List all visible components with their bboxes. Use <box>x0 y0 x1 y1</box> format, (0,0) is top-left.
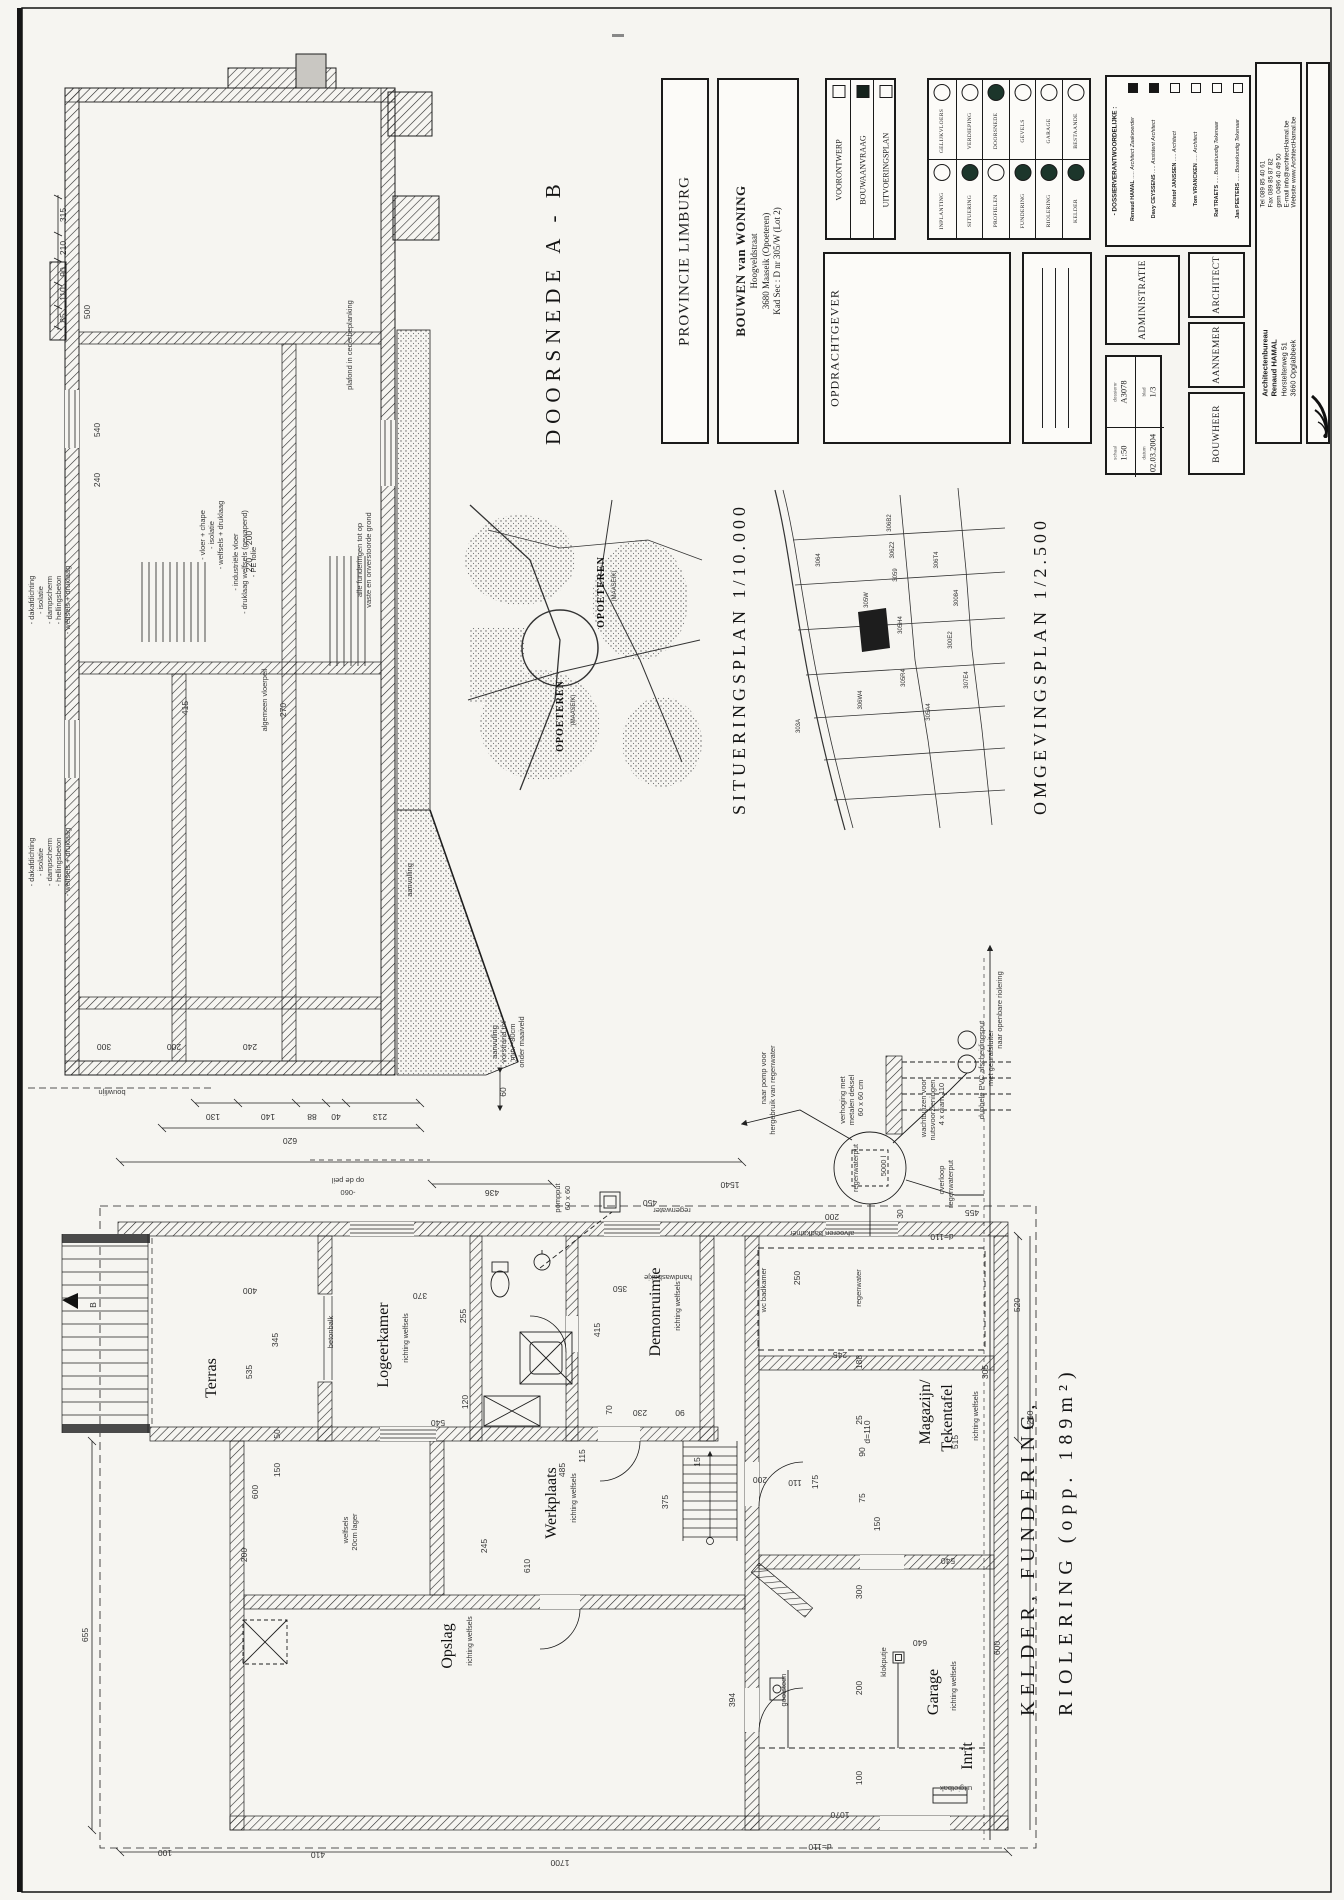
plan-label: 400 <box>243 1286 257 1296</box>
sheet-circle <box>1014 164 1031 181</box>
plan-label: 60 x 60 <box>563 1186 572 1211</box>
section-label: 60 <box>498 1087 508 1097</box>
section-label: algemeen vloerpeil <box>260 668 269 731</box>
meta-box: dossiernrA3078 blad1/3 schaal1:50 datum0… <box>1105 355 1162 475</box>
sheet-circle <box>1067 84 1084 101</box>
plan-label: 20cm lager <box>350 1513 359 1551</box>
sheet-label: KELDER <box>1073 199 1079 223</box>
phase-checkbox <box>879 85 892 98</box>
plan-title-line1: KELDER, FUNDERING, <box>1017 1399 1039 1716</box>
sheet-label: FUNDERING <box>1020 193 1026 228</box>
plan-label: 375 <box>660 1495 670 1509</box>
person-role: Bouwkundig Tekenaar <box>1235 119 1241 172</box>
plan-label: 455 <box>965 1208 979 1218</box>
section-label: vorstrand tot <box>499 1020 508 1063</box>
plan-label: afvoeren badkamer <box>789 1229 854 1238</box>
plan-label: 410 <box>311 1850 325 1860</box>
bouwheer-signature-box <box>1022 252 1092 444</box>
client-label: OPDRACHTGEVER <box>828 289 843 407</box>
plan-label: 485 <box>557 1463 567 1477</box>
bouwheer-box: BOUWHEER <box>1188 392 1245 475</box>
phase-voorontwerp: VOORONTWERP <box>827 80 850 238</box>
parcel-label: 303A <box>796 719 802 733</box>
person-role: Assistent Architect <box>1151 120 1157 164</box>
plan-label: hergebruik van regenwater <box>768 1045 777 1135</box>
plan-label: 515 <box>950 1435 960 1449</box>
person-checkbox <box>1128 83 1138 93</box>
sheet-circle <box>961 164 978 181</box>
plan-label: 188 <box>854 1355 864 1369</box>
firm-address1: Horstelterweg 51 <box>1279 329 1288 396</box>
section-label: - welfsels + druklaag <box>63 566 72 635</box>
plan-label: naar openbare riolering <box>995 971 1004 1049</box>
firm-fax: Fax 089 85 87 82 <box>1267 117 1275 208</box>
dossier-person: Renaud HAMAL ..... Architect Zaakvoerder <box>1123 81 1142 243</box>
plan-label: 50 <box>272 1429 282 1439</box>
phase-label: VOORONTWERP <box>834 139 843 200</box>
plan-label: 120 <box>460 1395 470 1409</box>
plan-label: 90 <box>857 1447 867 1457</box>
plan-label: 370 <box>413 1291 427 1301</box>
person-name: Tom VRANCKEN <box>1193 163 1199 206</box>
plan-label: verhoging met <box>838 1075 847 1123</box>
person-checkbox <box>1149 83 1159 93</box>
plan-label: 115 <box>577 1449 587 1463</box>
plan-label: wc badkamer <box>759 1267 768 1313</box>
room-label: Terras <box>203 1358 220 1398</box>
plan-label: nutsvoorzieningen <box>928 1080 937 1141</box>
map-label: OPOETEREN <box>596 556 607 628</box>
section-label: 240 <box>92 473 102 487</box>
parcel-label: 306T4 <box>934 551 940 569</box>
dossier-person: Kristof JANSSEN ..... Architect <box>1165 81 1184 243</box>
plan-label: uitgietbak <box>940 1784 972 1793</box>
plan-label: 350 <box>613 1284 627 1294</box>
administratie-label: ADMINISTRATIE <box>1138 260 1148 340</box>
plan-label: 300 <box>854 1585 864 1599</box>
sheet-label: INPLANTING <box>939 192 945 229</box>
sheet-circle <box>934 164 951 181</box>
section-label: aanvulling <box>490 1025 499 1059</box>
plan-label: richting welfsels <box>467 1616 474 1666</box>
parcel-label: 305W <box>864 592 870 608</box>
title-block: PROVINCIE LIMBURG BOUWEN van WONING Hoog… <box>655 60 1344 480</box>
section-label: 540 <box>92 423 102 437</box>
section-label: 213 <box>373 1112 387 1122</box>
section-label: 210 <box>58 241 68 255</box>
section-label: 240 <box>243 1042 257 1052</box>
plan-label: 245 <box>479 1539 489 1553</box>
person-role: Architect <box>1172 131 1178 152</box>
plan-label: 15 <box>692 1457 702 1467</box>
plan-label: 4 x diam 110 <box>937 1083 946 1125</box>
parcel-label: 306B2 <box>887 514 893 532</box>
plan-label: regenwater <box>854 1269 863 1307</box>
plan-label: 75 <box>857 1493 867 1503</box>
section-label: onder maaiveld <box>517 1016 526 1067</box>
phase-checkbox <box>832 85 845 98</box>
parcel-label: 3064 <box>816 553 822 567</box>
plan-label: welfsels <box>341 1516 350 1544</box>
plan-label: 70 <box>604 1405 614 1415</box>
sheet-circle <box>988 164 1005 181</box>
section-label: alle funderingen tot op <box>355 523 364 597</box>
plan-label: richting welfsels <box>675 1281 682 1331</box>
sheet-label: PROFIELEN <box>993 194 999 227</box>
sheet-label: BESTAANDE <box>1073 113 1079 149</box>
section-label: 110 <box>58 287 68 301</box>
sheet-label: GARAGE <box>1046 118 1052 143</box>
plan-label: 60 x 60 cm <box>856 1080 865 1117</box>
scanned-blueprint-sheet: OPOETEREN(MAASEIK)OPOETEREN(MAASEIK) 306… <box>0 0 1344 1900</box>
plan-label: dubbele PVC afscheidingsput <box>977 1020 986 1119</box>
section-label: 436 <box>485 1188 499 1198</box>
person-checkbox <box>1170 83 1180 93</box>
plan-label: d=110 <box>930 1232 954 1242</box>
dossier-person: Raf TRAETS ..... Bouwkundig Tekenaar <box>1207 81 1226 243</box>
plan-label: 100 <box>158 1848 172 1858</box>
dossier-number: A3078 <box>1119 380 1129 403</box>
room-label: Opslag <box>439 1623 456 1668</box>
parcel-label: 307E4 <box>964 671 970 689</box>
section-label: - dampscherm <box>45 838 54 886</box>
plan-label: richting welfsels <box>973 1391 980 1441</box>
person-name: Kristof JANSSEN <box>1172 163 1178 207</box>
firm-gsm: gsm 0496 40 49 50 <box>1275 117 1283 208</box>
section-label: op de peil <box>331 1176 364 1185</box>
person-name: Jan PEETERS <box>1235 183 1241 219</box>
section-label: 220 <box>244 558 254 572</box>
plan-label: richting welfsels <box>951 1661 958 1711</box>
section-label: bouwlijn <box>98 1088 125 1097</box>
plan-label: 655 <box>80 1628 90 1642</box>
sheet-number: 1/3 <box>1148 387 1158 398</box>
aannemer-box: AANNEMER <box>1188 322 1245 388</box>
plan-label: 150 <box>272 1463 282 1477</box>
person-name: Davy CEYSSENS <box>1151 174 1157 218</box>
parcel-label: 305R4 <box>901 669 907 687</box>
situeringsplan-title: SITUERINGSPLAN 1/10.000 <box>729 503 749 815</box>
section-label: 140 <box>261 1112 275 1122</box>
scale-value: 1:50 <box>1119 445 1129 460</box>
section-label: plafond in cederbeplanking <box>345 300 354 390</box>
plan-label: d=110 <box>862 1420 872 1444</box>
section-label: - isolatie <box>36 848 45 876</box>
aannemer-label: AANNEMER <box>1212 326 1222 384</box>
province-box: PROVINCIE LIMBURG <box>661 78 709 444</box>
province-label: PROVINCIE LIMBURG <box>677 176 694 346</box>
parcel-label: 300E2 <box>948 631 954 649</box>
sheet-circle <box>1067 164 1084 181</box>
person-role: Architect Zaakvoerder <box>1130 117 1136 170</box>
dossier-person: Tom VRANCKEN ..... Architect <box>1186 81 1205 243</box>
architect-box: ARCHITECT <box>1188 252 1245 318</box>
logo-box <box>1306 62 1330 444</box>
plan-label: 175 <box>810 1475 820 1489</box>
date-value: 02.03.2004 <box>1148 433 1158 471</box>
sheet-label: SITUERING <box>967 194 973 226</box>
phase-bouwaanvraag: BOUWAANVRAAG <box>850 80 874 238</box>
parcel-label: 306W4 <box>858 690 864 710</box>
plan-label: 1540 <box>720 1180 739 1190</box>
firm-address2: 3660 Opglabbeek <box>1288 329 1297 396</box>
map-label: (MAASEIK) <box>612 571 618 602</box>
sheet-label: GELIJKVLOERS <box>939 108 945 152</box>
bouwheer-label: BOUWHEER <box>1212 405 1222 463</box>
section-label: 85 <box>58 313 68 323</box>
regenwaterput-circle <box>834 1132 906 1204</box>
section-label: 200 <box>244 531 254 545</box>
plan-label: 100 <box>854 1771 864 1785</box>
sheet-circle <box>1041 164 1058 181</box>
plan-label: 150 <box>872 1517 882 1531</box>
plan-label: 245 <box>833 1350 847 1360</box>
sheet-index-box: GELIJKVLOERS INPLANTING VERDIEPING SITUE… <box>927 78 1091 240</box>
section-label: 270 <box>278 703 288 717</box>
section-label: vaste en onverstoorde grond <box>364 512 373 607</box>
section-label: aanvulling <box>405 863 414 897</box>
plan-label: klokputje <box>879 1647 888 1677</box>
plan-label: pompput <box>553 1182 562 1212</box>
plan-label: richting welfsels <box>571 1473 578 1523</box>
section-label: min. -80cm <box>508 1023 517 1060</box>
sheet-circle <box>1014 84 1031 101</box>
person-checkbox <box>1233 83 1243 93</box>
plan-label: 90 <box>675 1408 685 1418</box>
person-name: Renaud HAMAL <box>1130 180 1136 221</box>
plan-label: 110 <box>788 1478 802 1488</box>
plan-label: naar pomp voor <box>759 1051 768 1104</box>
firm-name1: Architectenbureau <box>1260 329 1269 396</box>
person-checkbox <box>1212 83 1222 93</box>
section-label: - hellingsbeton <box>54 576 63 625</box>
phase-checkbox <box>856 85 869 98</box>
section-label: - welfsels + druklaag <box>216 501 225 570</box>
plan-label: 200 <box>854 1681 864 1695</box>
plan-label: 610 <box>522 1559 532 1573</box>
plan-label: 535 <box>244 1365 254 1379</box>
phase-box: VOORONTWERP BOUWAANVRAAG UITVOERINGSPLAN <box>825 78 896 240</box>
section-label: 300 <box>97 1042 111 1052</box>
sheet-label: VERDIEPING <box>967 112 973 149</box>
sheet-label: GEVELS <box>1020 119 1026 142</box>
person-role: Architect <box>1193 132 1199 153</box>
section-label: -060 <box>340 1188 355 1197</box>
plan-label: betonbalk <box>326 1315 335 1348</box>
firm-logo-icon <box>1310 392 1328 438</box>
room-label: Garage <box>925 1669 942 1715</box>
situeringsplan-map <box>465 500 702 790</box>
sheet-circle <box>1041 84 1058 101</box>
person-name: Raf TRAETS <box>1214 185 1220 217</box>
plan-label: 540 <box>431 1418 445 1428</box>
plan-label: 640 <box>913 1638 927 1648</box>
sheet-label: DOORSNEDE <box>993 112 999 149</box>
section-label: - vloer + chape <box>198 510 207 560</box>
project-kadaster: Kad Sec : D nr 305/W (Lot 2) <box>772 185 783 336</box>
plan-title-line2: RIOLERING (opp. 189m²) <box>1055 1366 1077 1716</box>
plan-label: 30 <box>895 1209 905 1219</box>
plan-label: 200 <box>825 1212 839 1222</box>
architect-label: ARCHITECT <box>1212 256 1222 314</box>
omgevingsplan-title: OMGEVINGSPLAN 1/2.500 <box>1030 517 1050 815</box>
person-checkbox <box>1191 83 1201 93</box>
firm-tel: Tel 089 85 40 61 <box>1259 117 1267 208</box>
firm-box: Tel 089 85 40 61 Fax 089 85 87 82 gsm 04… <box>1255 62 1302 444</box>
plan-label: gootsteen <box>779 1674 788 1707</box>
room-label: Magazijn/ <box>917 1379 934 1444</box>
terrace-deck <box>62 1234 152 1433</box>
parcel-label: 305A4 <box>926 703 932 721</box>
section-label: - welfsels + druklaag <box>63 828 72 897</box>
section-title: DOORSNEDE A - B <box>541 178 565 445</box>
administratie-box: ADMINISTRATIE <box>1105 255 1180 345</box>
plan-label: regenwaterput <box>851 1143 860 1192</box>
sheet-circle <box>961 84 978 101</box>
plan-label: 394 <box>727 1693 737 1707</box>
plan-label: 1070 <box>830 1810 849 1820</box>
site-parcel-filled <box>858 608 890 652</box>
section-label: - isolatie <box>36 586 45 614</box>
plan-label: metalen deksel <box>847 1074 856 1125</box>
project-title: BOUWEN van WONING <box>733 185 749 336</box>
section-label: 130 <box>206 1112 220 1122</box>
bathroom-fixtures <box>484 1250 572 1426</box>
plan-label: 1700 <box>550 1858 569 1868</box>
plan-label: 600 <box>992 1641 1002 1655</box>
plan-label: 415 <box>592 1323 602 1337</box>
sheet-circle <box>934 84 951 101</box>
section-label: 88 <box>307 1112 317 1122</box>
section-label: 500 <box>82 305 92 319</box>
firm-website: Website www.ArchitectHamal.be <box>1290 117 1298 208</box>
plan-label: met geurafsluiter <box>986 1030 995 1086</box>
plan-label: overloop <box>937 1166 946 1195</box>
plan-label: 230 <box>633 1408 647 1418</box>
parcel-label: 306Z2 <box>890 541 896 559</box>
firm-email: E-mail info@architectHamal.be <box>1282 117 1290 208</box>
parcel-label: 30084 <box>954 589 960 606</box>
parcel-label: 305H4 <box>898 616 904 634</box>
section-label: B <box>88 1302 98 1308</box>
phase-label: UITVOERINGSPLAN <box>881 133 890 208</box>
parcel-label: 3059 <box>893 568 899 582</box>
plan-label: regenwaterput <box>946 1159 955 1208</box>
plan-label: 450 <box>643 1198 657 1208</box>
section-label: - hellingsbeton <box>54 838 63 887</box>
plan-label: 345 <box>270 1333 280 1347</box>
section-label: - dakafdichting <box>27 576 36 625</box>
plan-label: 305 <box>980 1365 990 1379</box>
plan-label: 250 <box>792 1271 802 1285</box>
section-label: - isolatie <box>207 521 216 549</box>
firm-name2: Renaud HAMAL <box>1270 329 1279 396</box>
project-box: BOUWEN van WONING Hoogveldstraat 3680 Ma… <box>717 78 799 444</box>
section-label: - dakafdichting <box>27 838 36 887</box>
dossier-box: - DOSSIERVERANTWOORDELIJKE : Renaud HAMA… <box>1105 75 1251 247</box>
plan-label: d=110 <box>808 1842 832 1852</box>
plan-label: 520 <box>1012 1298 1022 1312</box>
section-label: 415 <box>180 701 190 715</box>
floor-plan <box>62 946 1036 1856</box>
project-city: 3680 Maaseik (Opoeteren) <box>761 185 772 336</box>
section-label: 315 <box>58 208 68 222</box>
section-label: 620 <box>283 1136 297 1146</box>
section-label: - dampscherm <box>45 576 54 624</box>
plan-label: 200 <box>753 1475 767 1485</box>
plan-label: regenwater <box>653 1206 691 1215</box>
phase-uitvoeringsplan: UITVOERINGSPLAN <box>873 80 897 238</box>
dossier-person: Jan PEETERS ..... Bouwkundig Tekenaar <box>1228 81 1247 243</box>
plan-label: richting welfsels <box>403 1313 410 1363</box>
client-box: OPDRACHTGEVER <box>823 252 1011 444</box>
map-label: (MAASEIK) <box>571 695 577 726</box>
person-role: Bouwkundig Tekenaar <box>1214 121 1220 174</box>
section-labels: - dakafdichting- isolatie- dampscherm- h… <box>27 208 526 1308</box>
sheet-label: RIOLERING <box>1046 194 1052 227</box>
project-street: Hoogveldstraat <box>749 185 760 336</box>
section-label: 40 <box>331 1112 341 1122</box>
plan-label: 5000 l <box>879 1155 888 1176</box>
plan-label: 540 <box>941 1556 955 1566</box>
plan-label: 255 <box>458 1309 468 1323</box>
dossier-header: - DOSSIERVERANTWOORDELIJKE : <box>1112 107 1119 216</box>
section-label: 90 <box>58 267 68 277</box>
plan-label: 200 <box>239 1548 249 1562</box>
plan-label: 600 <box>250 1485 260 1499</box>
room-label: Inrit <box>959 1742 976 1770</box>
plan-label: handwasbakje <box>644 1273 692 1282</box>
dossier-person: Davy CEYSSENS ..... Assistent Architect <box>1144 81 1163 243</box>
section-label: - industriële vloer <box>231 533 240 591</box>
section-label: 200 <box>167 1042 181 1052</box>
plan-label: wachtbuizen voor <box>919 1078 928 1138</box>
map-label: OPOETEREN <box>555 680 566 752</box>
plan-stairs <box>683 1441 737 1545</box>
phase-label: BOUWAANVRAAG <box>858 135 867 204</box>
room-label: Logeerkamer <box>375 1302 392 1388</box>
sheet-circle <box>988 84 1005 101</box>
